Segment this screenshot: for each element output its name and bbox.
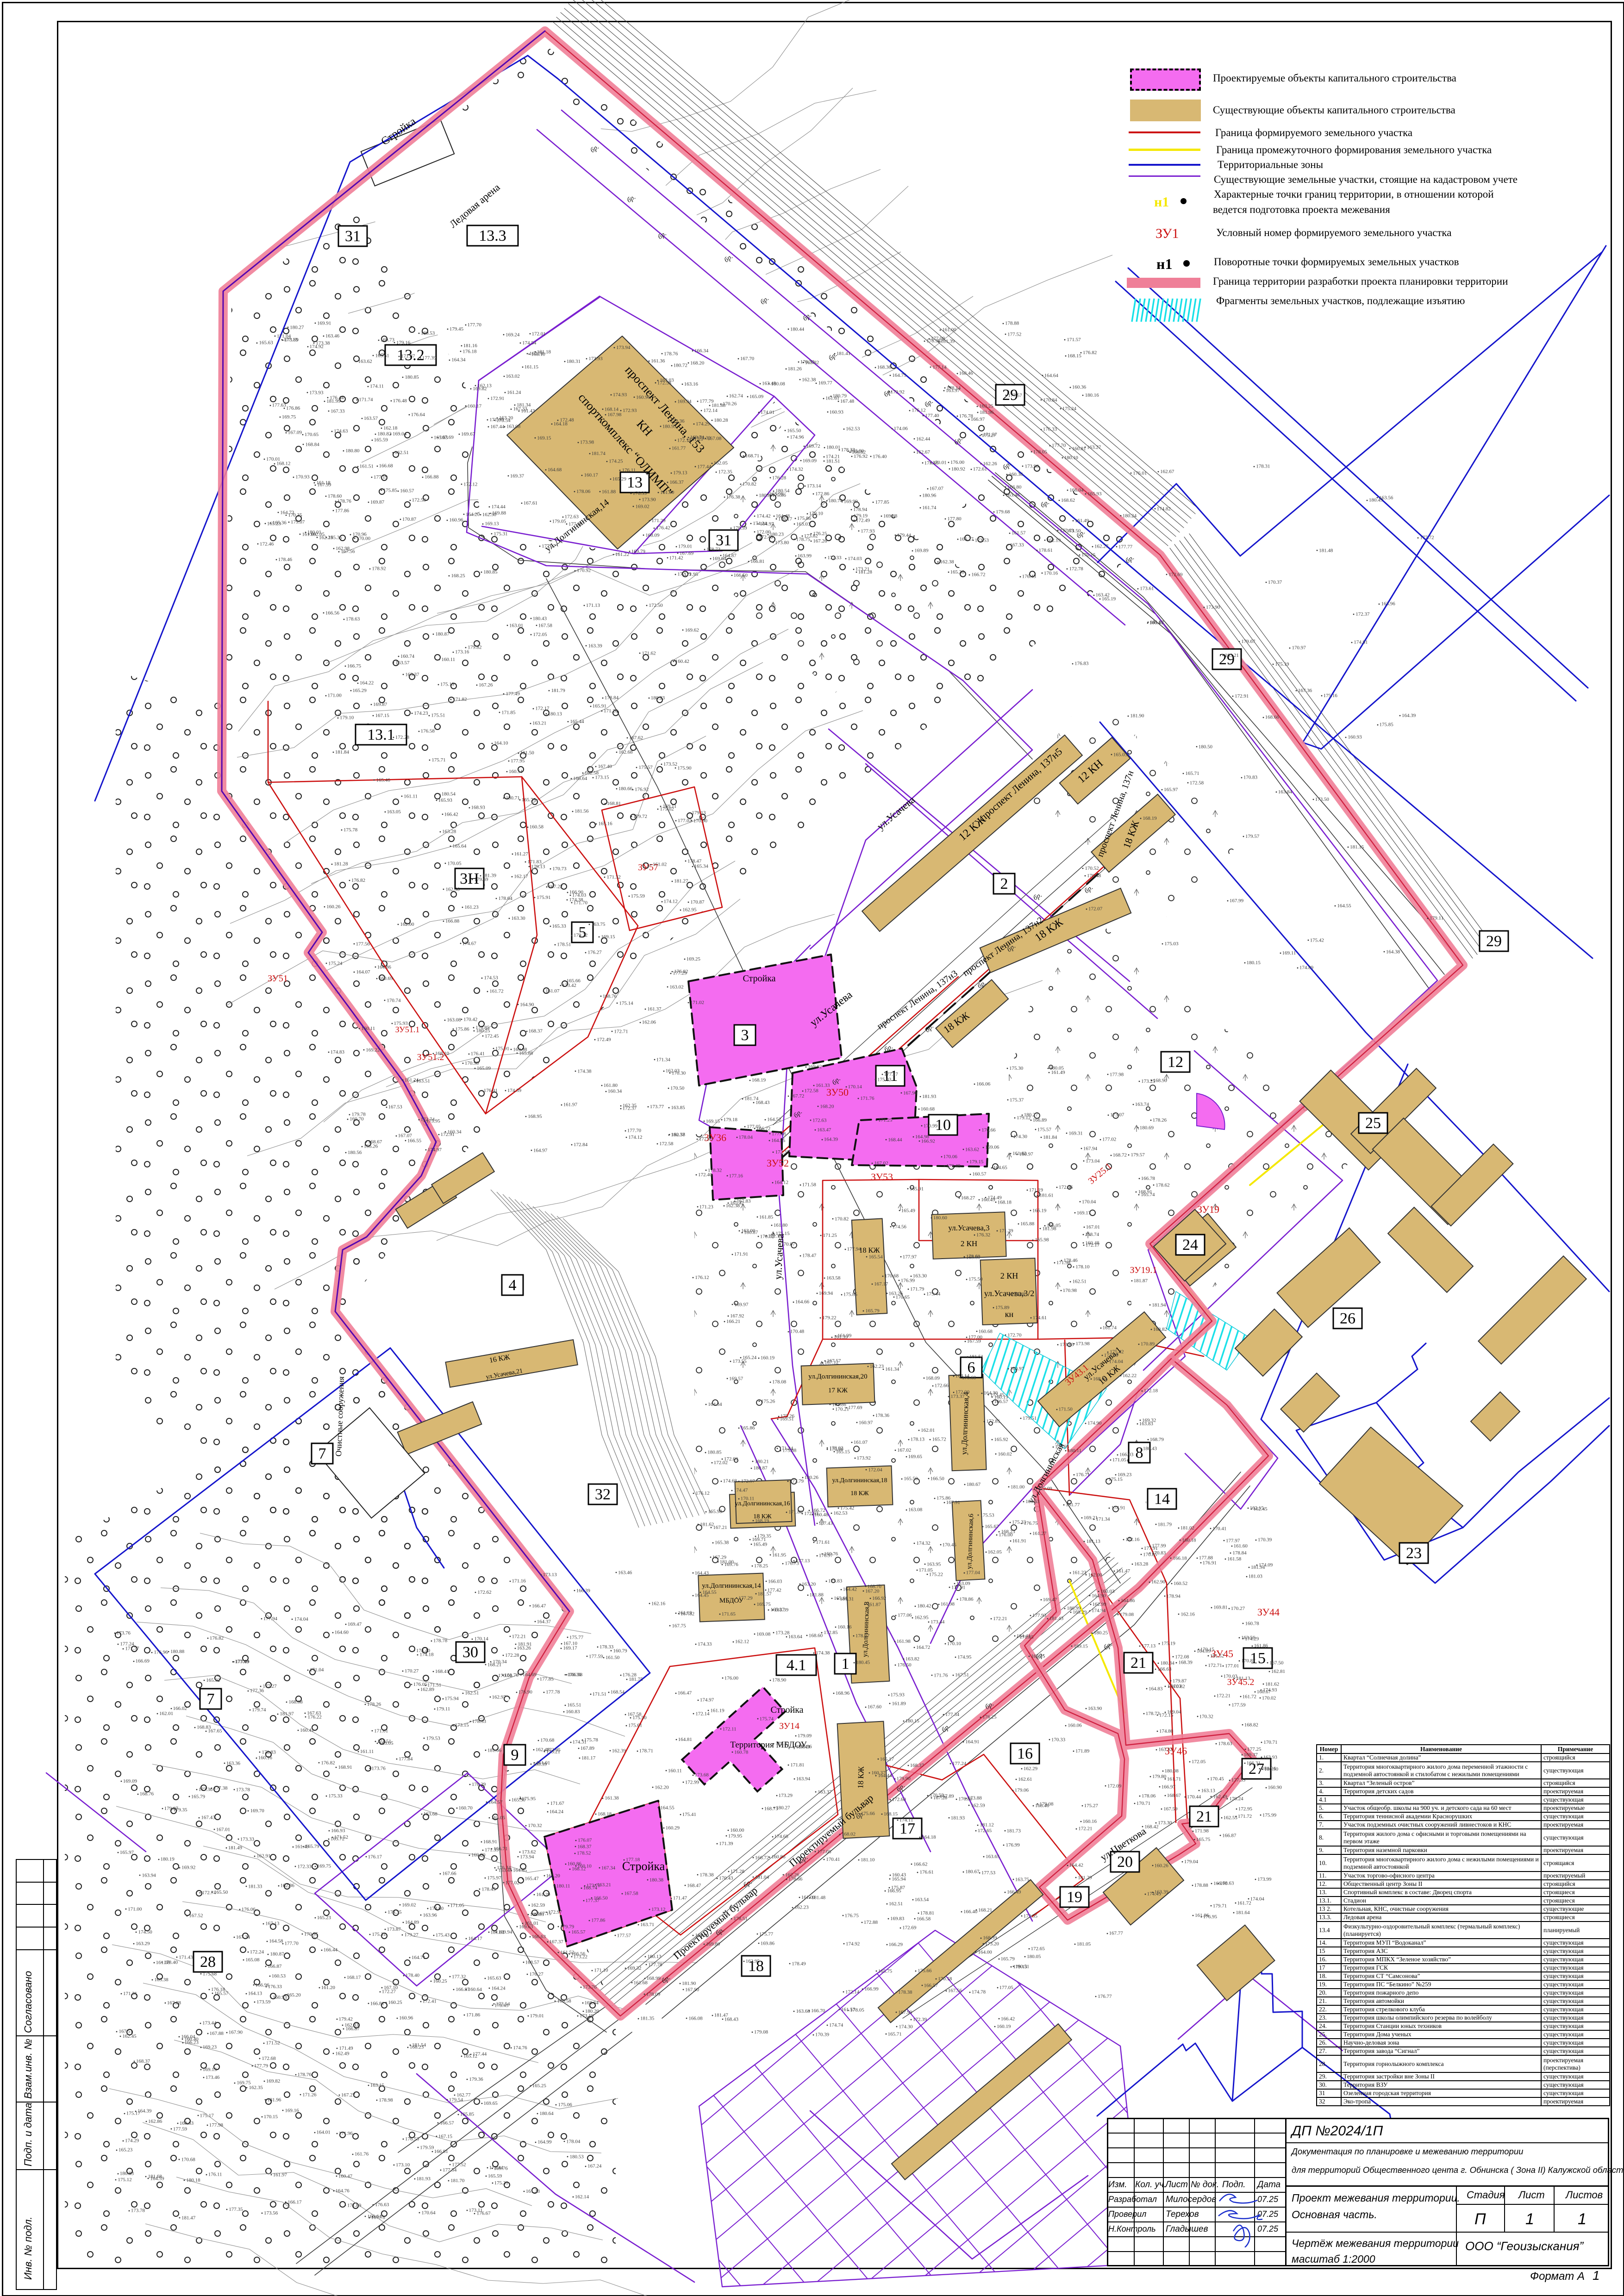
svg-text:164.83: 164.83 <box>1149 1686 1163 1691</box>
svg-text:164.39: 164.39 <box>1402 713 1416 718</box>
svg-text:ул.Усачева,3/2: ул.Усачева,3/2 <box>984 1289 1035 1298</box>
svg-text:179.57: 179.57 <box>1245 834 1260 839</box>
svg-text:178.51: 178.51 <box>733 1916 747 1922</box>
svg-text:165.91: 165.91 <box>910 1186 924 1192</box>
svg-text:161.91: 161.91 <box>1012 1538 1026 1544</box>
svg-text:178.90: 178.90 <box>772 1678 787 1683</box>
svg-text:166.49: 166.49 <box>1007 1890 1021 1895</box>
svg-text:162.29: 162.29 <box>1024 1766 1038 1772</box>
svg-text:170.73: 170.73 <box>552 866 567 872</box>
svg-text:179.74: 179.74 <box>252 1707 266 1713</box>
svg-text:171.05: 171.05 <box>919 1567 933 1573</box>
svg-text:164.34: 164.34 <box>451 357 466 363</box>
svg-text:168.14: 168.14 <box>605 406 619 412</box>
svg-text:161.07: 161.07 <box>545 988 560 994</box>
svg-text:177.80: 177.80 <box>947 516 962 522</box>
svg-text:174.80: 174.80 <box>1159 1728 1174 1734</box>
svg-text:165.91: 165.91 <box>593 704 606 709</box>
svg-text:167.78: 167.78 <box>371 2215 386 2221</box>
svg-text:175.91: 175.91 <box>495 1046 509 1051</box>
svg-text:175.57: 175.57 <box>638 765 653 770</box>
svg-text:175.51: 175.51 <box>431 713 445 718</box>
svg-text:175.26: 175.26 <box>761 1398 775 1404</box>
svg-text:175.86: 175.86 <box>797 516 812 521</box>
svg-text:164.24: 164.24 <box>550 1809 564 1815</box>
svg-text:173.12: 173.12 <box>651 1907 665 1912</box>
svg-text:173.32: 173.32 <box>697 436 711 441</box>
svg-text:181.26: 181.26 <box>788 366 802 372</box>
svg-text:170.06: 170.06 <box>943 1154 958 1160</box>
svg-text:177.05: 177.05 <box>999 1985 1014 1990</box>
svg-text:170.33: 170.33 <box>1051 1737 1066 1742</box>
svg-text:175.77: 175.77 <box>759 1931 774 1937</box>
svg-text:171.76: 171.76 <box>860 1096 874 1101</box>
svg-text:177.72: 177.72 <box>1420 535 1434 541</box>
svg-text:170.87: 170.87 <box>1241 1658 1255 1664</box>
svg-text:163.95: 163.95 <box>927 1561 941 1567</box>
svg-text:167.43: 167.43 <box>201 1815 215 1821</box>
svg-text:181.70: 181.70 <box>450 2178 465 2184</box>
svg-text:173.68: 173.68 <box>695 1772 709 1778</box>
svg-text:163.96: 163.96 <box>423 1912 437 1918</box>
svg-text:179.11: 179.11 <box>437 1706 450 1712</box>
svg-text:169.67: 169.67 <box>461 431 475 437</box>
svg-text:172.93: 172.93 <box>623 408 637 413</box>
svg-text:164.91: 164.91 <box>965 1739 979 1745</box>
svg-text:171.32: 171.32 <box>606 874 620 880</box>
svg-text:168.19: 168.19 <box>1143 816 1157 821</box>
svg-text:168.67: 168.67 <box>1167 1793 1181 1798</box>
svg-text:174.32: 174.32 <box>789 467 803 472</box>
svg-text:168.91: 168.91 <box>483 1839 497 1845</box>
svg-text:169.72: 169.72 <box>806 443 820 449</box>
svg-text:172.11: 172.11 <box>723 1726 737 1732</box>
svg-text:176.64: 176.64 <box>411 412 425 418</box>
svg-text:170.39: 170.39 <box>1258 1537 1272 1543</box>
svg-text:165.93: 165.93 <box>1087 491 1102 497</box>
svg-text:30: 30 <box>462 1644 478 1661</box>
svg-text:169.94: 169.94 <box>677 399 692 405</box>
svg-text:160.16: 160.16 <box>1083 1819 1097 1824</box>
svg-text:171.74: 171.74 <box>359 397 373 403</box>
svg-text:177.85: 177.85 <box>875 499 889 505</box>
svg-text:164.09: 164.09 <box>1197 1648 1211 1654</box>
svg-text:173.30: 173.30 <box>1158 1820 1172 1826</box>
svg-text:175.74: 175.74 <box>760 1716 774 1722</box>
svg-text:167.77: 167.77 <box>1109 1931 1124 1936</box>
svg-text:177.56: 177.56 <box>356 941 370 947</box>
svg-text:170.84: 170.84 <box>1043 397 1057 403</box>
svg-text:175.27: 175.27 <box>982 433 996 438</box>
svg-text:163.62: 163.62 <box>358 359 372 364</box>
svg-text:160.36: 160.36 <box>1072 385 1087 390</box>
svg-text:171.98: 171.98 <box>1195 1828 1209 1834</box>
svg-text:174.83: 174.83 <box>331 1049 345 1055</box>
svg-text:160.17: 160.17 <box>468 403 482 409</box>
svg-text:178.04: 178.04 <box>739 1135 753 1140</box>
svg-text:181.90: 181.90 <box>1130 713 1144 719</box>
svg-text:176.34: 176.34 <box>497 1865 511 1871</box>
svg-text:174.33: 174.33 <box>698 1641 712 1647</box>
svg-text:171.43: 171.43 <box>179 1954 193 1960</box>
svg-text:166.97: 166.97 <box>1162 1784 1176 1790</box>
svg-text:165.23: 165.23 <box>267 521 281 526</box>
svg-text:174.38: 174.38 <box>816 1650 830 1656</box>
svg-text:179.45: 179.45 <box>450 326 464 332</box>
svg-text:168.47: 168.47 <box>687 1883 701 1888</box>
svg-text:177.27: 177.27 <box>262 1684 277 1689</box>
svg-text:174.39: 174.39 <box>507 1088 522 1093</box>
svg-text:168.54: 168.54 <box>611 1690 625 1695</box>
svg-text:167.57: 167.57 <box>827 1358 841 1364</box>
svg-text:172.21: 172.21 <box>1217 1693 1230 1699</box>
svg-text:176.58: 176.58 <box>421 729 435 734</box>
svg-text:172.46: 172.46 <box>260 541 274 547</box>
svg-text:168.02: 168.02 <box>842 1832 856 1837</box>
svg-text:177.84: 177.84 <box>399 1756 413 1762</box>
svg-text:181.13: 181.13 <box>1236 1676 1250 1681</box>
svg-text:169.47: 169.47 <box>348 1622 362 1627</box>
svg-text:178.26: 178.26 <box>1153 1117 1167 1123</box>
svg-text:169.76: 169.76 <box>494 2165 508 2171</box>
svg-text:176.18: 176.18 <box>462 349 477 354</box>
svg-text:177.16: 177.16 <box>729 1173 743 1179</box>
svg-text:172.39: 172.39 <box>913 2017 927 2022</box>
svg-text:180.05: 180.05 <box>1050 1066 1064 1071</box>
svg-text:174.76: 174.76 <box>513 2045 527 2051</box>
svg-text:161.24: 161.24 <box>405 1077 419 1083</box>
svg-text:180.27: 180.27 <box>290 324 304 330</box>
svg-text:168.66: 168.66 <box>1265 715 1280 720</box>
svg-text:179.79: 179.79 <box>560 1924 575 1929</box>
svg-text:162.00: 162.00 <box>400 922 414 927</box>
svg-text:177.91: 177.91 <box>951 1585 965 1590</box>
svg-text:160.53: 160.53 <box>272 1973 286 1979</box>
svg-text:168.83: 168.83 <box>197 1725 211 1730</box>
svg-text:169.47: 169.47 <box>1043 1597 1057 1603</box>
svg-text:13.3: 13.3 <box>479 227 506 244</box>
svg-text:181.93: 181.93 <box>922 1094 937 1099</box>
svg-text:165.92: 165.92 <box>206 1678 220 1683</box>
svg-text:180.87: 180.87 <box>435 631 450 637</box>
svg-text:бр.: бр. <box>924 1023 935 1034</box>
svg-text:163.80: 163.80 <box>850 449 864 454</box>
svg-text:162.59: 162.59 <box>531 1903 545 1908</box>
svg-text:166.88: 166.88 <box>445 918 460 924</box>
svg-text:176.17: 176.17 <box>368 1854 382 1859</box>
svg-text:164.14: 164.14 <box>956 1373 970 1379</box>
svg-text:164.17: 164.17 <box>468 1936 482 1941</box>
svg-text:181.62: 181.62 <box>700 1522 714 1527</box>
svg-text:167.59: 167.59 <box>1163 1806 1178 1812</box>
svg-text:162.95: 162.95 <box>682 907 697 913</box>
svg-text:173.25: 173.25 <box>1141 1079 1156 1084</box>
svg-text:166.72: 166.72 <box>755 1855 769 1860</box>
svg-text:167.99: 167.99 <box>1230 898 1244 904</box>
svg-text:166.31: 166.31 <box>1247 1760 1261 1766</box>
svg-text:165.63: 165.63 <box>487 1976 501 1981</box>
svg-text:164.55: 164.55 <box>1337 903 1351 909</box>
svg-text:177.04: 177.04 <box>966 1570 981 1576</box>
svg-text:161.72: 161.72 <box>1243 1694 1256 1699</box>
svg-text:165.33: 165.33 <box>552 923 567 929</box>
svg-text:171.23: 171.23 <box>700 1204 714 1210</box>
svg-text:166.88: 166.88 <box>425 474 439 480</box>
svg-text:163.75: 163.75 <box>591 922 606 927</box>
svg-text:172.62: 172.62 <box>477 1590 491 1595</box>
svg-text:176.32: 176.32 <box>976 1232 990 1238</box>
svg-text:180.05: 180.05 <box>1027 1954 1041 1959</box>
svg-text:167.40: 167.40 <box>598 764 612 769</box>
svg-text:165.68: 165.68 <box>834 1596 848 1601</box>
svg-text:163.28: 163.28 <box>1134 1561 1149 1567</box>
svg-text:169.24: 169.24 <box>506 332 520 337</box>
svg-text:165.79: 165.79 <box>191 1794 206 1799</box>
svg-text:166.04: 166.04 <box>181 2034 195 2040</box>
svg-text:172.28: 172.28 <box>505 1653 519 1658</box>
svg-text:176.61: 176.61 <box>919 1870 933 1875</box>
svg-text:172.74: 172.74 <box>202 1890 216 1896</box>
svg-text:165.75: 165.75 <box>522 797 536 803</box>
svg-text:167.27: 167.27 <box>341 2092 356 2098</box>
svg-text:181.47: 181.47 <box>181 2215 196 2221</box>
svg-text:172.35: 172.35 <box>718 469 732 475</box>
svg-text:176.82: 176.82 <box>210 1635 224 1641</box>
svg-text:163.39: 163.39 <box>588 643 602 649</box>
svg-text:165.17: 165.17 <box>880 1756 894 1762</box>
svg-text:177.57: 177.57 <box>1008 393 1022 398</box>
svg-text:179.90: 179.90 <box>897 1776 911 1782</box>
svg-text:180.50: 180.50 <box>1199 744 1213 749</box>
svg-text:168.23: 168.23 <box>1001 1529 1015 1535</box>
svg-text:177.78: 177.78 <box>546 1690 560 1695</box>
svg-text:161.98: 161.98 <box>897 1639 911 1644</box>
svg-text:170.32: 170.32 <box>1199 1714 1213 1719</box>
svg-text:164.71: 164.71 <box>412 1955 425 1960</box>
svg-text:173.37: 173.37 <box>950 1394 965 1399</box>
svg-text:168.76: 168.76 <box>603 993 617 999</box>
svg-text:170.68: 170.68 <box>181 2157 195 2162</box>
svg-text:181.10: 181.10 <box>861 1857 875 1863</box>
svg-text:174.04: 174.04 <box>1250 1896 1265 1902</box>
svg-text:166.50: 166.50 <box>734 573 748 578</box>
svg-text:174.89: 174.89 <box>1299 965 1314 971</box>
svg-text:165.50: 165.50 <box>214 1890 228 1895</box>
svg-text:170.64: 170.64 <box>421 2210 436 2215</box>
svg-text:177.18: 177.18 <box>626 1857 640 1863</box>
svg-text:166.08: 166.08 <box>688 2015 703 2021</box>
svg-text:174.67: 174.67 <box>462 941 477 946</box>
svg-text:161.50: 161.50 <box>606 1655 620 1660</box>
svg-text:162.51: 162.51 <box>395 450 409 455</box>
svg-text:172.21: 172.21 <box>512 1634 526 1639</box>
svg-text:169.77: 169.77 <box>818 381 832 386</box>
svg-text:175.77: 175.77 <box>569 1635 584 1640</box>
svg-text:167.99: 167.99 <box>317 482 331 488</box>
svg-text:178.26: 178.26 <box>367 1702 381 1707</box>
svg-text:160.11: 160.11 <box>361 1026 375 1031</box>
svg-text:177.70: 177.70 <box>627 1128 642 1134</box>
svg-text:170.43: 170.43 <box>719 1876 733 1881</box>
svg-text:165.03: 165.03 <box>1113 752 1128 757</box>
svg-text:166.87: 166.87 <box>268 1964 282 1969</box>
svg-text:175.97: 175.97 <box>487 1875 501 1881</box>
svg-text:167.21: 167.21 <box>713 1525 727 1530</box>
svg-text:173.59: 173.59 <box>256 1999 271 2005</box>
svg-text:181.62: 181.62 <box>1265 1681 1279 1687</box>
svg-text:166.41: 166.41 <box>1149 620 1163 626</box>
svg-text:177.33: 177.33 <box>827 555 842 561</box>
svg-text:174.45: 174.45 <box>1147 1891 1162 1897</box>
svg-text:164.89: 164.89 <box>405 1920 419 1925</box>
svg-text:165.44: 165.44 <box>570 719 584 724</box>
svg-text:168.18: 168.18 <box>598 1811 612 1817</box>
svg-text:175.71: 175.71 <box>431 757 445 763</box>
svg-text:167.01: 167.01 <box>216 1827 230 1832</box>
svg-text:167.34: 167.34 <box>601 1865 616 1871</box>
svg-text:175.03: 175.03 <box>1164 941 1179 947</box>
svg-text:171.62: 171.62 <box>642 650 656 656</box>
svg-text:176.82: 176.82 <box>351 878 365 883</box>
svg-text:171.29: 171.29 <box>651 518 666 524</box>
svg-text:165.88: 165.88 <box>519 1050 533 1056</box>
svg-text:162.01: 162.01 <box>921 1428 935 1433</box>
svg-text:181.98: 181.98 <box>1042 1226 1056 1231</box>
svg-text:180.08: 180.08 <box>1165 1768 1179 1774</box>
svg-text:167.58: 167.58 <box>624 1891 638 1897</box>
svg-text:175.66: 175.66 <box>861 1811 875 1816</box>
svg-text:166.42: 166.42 <box>444 811 458 817</box>
svg-text:169.32: 169.32 <box>627 1965 641 1971</box>
svg-text:176.25: 176.25 <box>982 1715 997 1720</box>
svg-text:161.11: 161.11 <box>404 793 418 799</box>
svg-text:173.94: 173.94 <box>520 1854 534 1859</box>
svg-text:171.04: 171.04 <box>310 1667 324 1673</box>
svg-text:169.22: 169.22 <box>366 1047 380 1053</box>
svg-text:2 КН: 2 КН <box>961 1239 977 1248</box>
svg-text:173.04: 173.04 <box>1086 1158 1100 1164</box>
svg-text:169.75: 169.75 <box>756 1602 771 1607</box>
svg-text:161.60: 161.60 <box>1234 1543 1248 1549</box>
svg-text:181.28: 181.28 <box>334 861 348 867</box>
svg-text:181.49: 181.49 <box>228 1845 243 1851</box>
svg-text:169.94: 169.94 <box>498 1929 512 1935</box>
svg-text:160.47: 160.47 <box>338 2173 353 2179</box>
svg-text:161.88: 161.88 <box>602 489 616 494</box>
svg-text:178.31: 178.31 <box>1256 464 1270 469</box>
svg-text:175.93: 175.93 <box>394 1021 408 1026</box>
svg-text:181.94: 181.94 <box>1152 1302 1166 1308</box>
svg-text:179.92: 179.92 <box>891 389 905 395</box>
svg-text:169.09: 169.09 <box>803 458 817 463</box>
svg-text:172.18: 172.18 <box>1144 1388 1158 1394</box>
svg-text:173.61: 173.61 <box>1140 586 1154 592</box>
svg-text:170.15: 170.15 <box>264 2114 278 2120</box>
svg-text:ул.Долгининская,18: ул.Долгининская,18 <box>832 1477 887 1484</box>
svg-text:163.68: 163.68 <box>424 1811 438 1817</box>
svg-text:175.95: 175.95 <box>522 1796 536 1802</box>
svg-text:163.48: 163.48 <box>1006 493 1020 498</box>
svg-text:178.61: 178.61 <box>1039 548 1053 553</box>
svg-text:162.23: 162.23 <box>319 535 333 540</box>
svg-text:180.43: 180.43 <box>1143 1446 1157 1451</box>
svg-text:171.86: 171.86 <box>466 2012 481 2018</box>
svg-text:180.96: 180.96 <box>922 493 937 499</box>
svg-text:163.97: 163.97 <box>946 388 960 393</box>
svg-text:177.52: 177.52 <box>452 2162 466 2167</box>
svg-text:169.62: 169.62 <box>685 627 699 633</box>
svg-text:181.12: 181.12 <box>980 1822 993 1828</box>
svg-text:178.94: 178.94 <box>853 507 868 512</box>
svg-text:166.71: 166.71 <box>493 1846 507 1852</box>
svg-text:178.64: 178.64 <box>498 896 512 901</box>
svg-text:168.82: 168.82 <box>1244 1722 1258 1728</box>
svg-text:168.17: 168.17 <box>347 1975 361 1980</box>
svg-text:175.30: 175.30 <box>1009 1066 1024 1071</box>
svg-text:163.56: 163.56 <box>1241 1635 1255 1641</box>
svg-text:170.04: 170.04 <box>1082 1199 1096 1204</box>
svg-text:164.43: 164.43 <box>695 1570 709 1576</box>
svg-text:168.62: 168.62 <box>1061 498 1075 503</box>
svg-text:175.90: 175.90 <box>677 765 692 771</box>
svg-text:172.58: 172.58 <box>412 498 426 503</box>
svg-text:177.17: 177.17 <box>884 1072 899 1077</box>
svg-text:172.60: 172.60 <box>892 1797 906 1803</box>
svg-text:163.42: 163.42 <box>1096 593 1110 598</box>
svg-text:161.58: 161.58 <box>1227 1556 1242 1562</box>
svg-text:169.80: 169.80 <box>706 1941 720 1947</box>
svg-text:176.12: 176.12 <box>695 1275 709 1280</box>
svg-text:162.68: 162.68 <box>618 749 633 755</box>
svg-text:172.48: 172.48 <box>560 418 574 423</box>
svg-text:170.15: 170.15 <box>1081 552 1096 558</box>
svg-text:167.44: 167.44 <box>490 424 505 430</box>
svg-text:168.37: 168.37 <box>136 2059 150 2064</box>
svg-text:161.43: 161.43 <box>521 408 535 414</box>
svg-text:174.29: 174.29 <box>125 2138 139 2144</box>
svg-text:176.77: 176.77 <box>1098 1994 1112 1999</box>
svg-text:163.03: 163.03 <box>796 521 811 527</box>
svg-text:178.32: 178.32 <box>708 1167 722 1173</box>
svg-text:167.90: 167.90 <box>685 1987 700 1992</box>
svg-text:177.29: 177.29 <box>738 1595 753 1601</box>
svg-text:160.41: 160.41 <box>300 1728 314 1733</box>
svg-text:160.83: 160.83 <box>566 1709 580 1715</box>
svg-text:168.44: 168.44 <box>888 1137 902 1142</box>
svg-text:169.58: 169.58 <box>557 1998 571 2004</box>
svg-text:167.70: 167.70 <box>740 356 755 362</box>
svg-text:176.25: 176.25 <box>813 531 827 537</box>
svg-text:178.25: 178.25 <box>754 1563 768 1569</box>
svg-text:172.05: 172.05 <box>1192 1759 1206 1765</box>
svg-text:178.60: 178.60 <box>328 493 342 499</box>
svg-text:160.42: 160.42 <box>675 659 689 664</box>
svg-text:162.45: 162.45 <box>122 2034 137 2039</box>
svg-text:163.57: 163.57 <box>364 416 378 421</box>
svg-text:174.96: 174.96 <box>790 434 804 440</box>
svg-text:166.92: 166.92 <box>872 1596 886 1601</box>
svg-text:171.72: 171.72 <box>1238 1814 1252 1819</box>
svg-text:176.11: 176.11 <box>622 468 636 473</box>
svg-text:177.08: 177.08 <box>817 1849 831 1854</box>
svg-text:180.24: 180.24 <box>1123 513 1137 518</box>
svg-text:171.65: 171.65 <box>722 1611 736 1617</box>
svg-text:166.87: 166.87 <box>1222 1833 1237 1838</box>
svg-text:176.92: 176.92 <box>854 454 868 459</box>
svg-text:165.29: 165.29 <box>612 476 627 482</box>
svg-text:176.91: 176.91 <box>1203 1560 1217 1566</box>
svg-text:171.39: 171.39 <box>999 1228 1013 1234</box>
